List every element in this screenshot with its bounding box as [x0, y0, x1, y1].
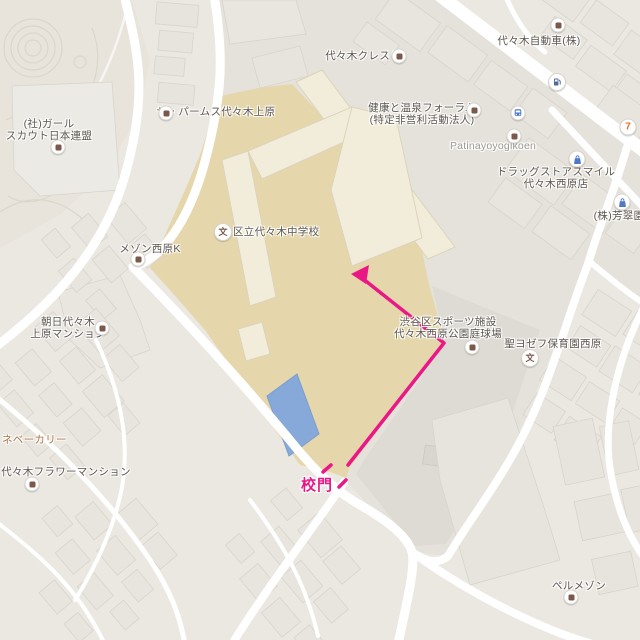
- label-shibuya-sports-courts: 渋谷区スポーツ施設代々木西原公園庭球場: [394, 316, 502, 340]
- school-icon[interactable]: 文: [214, 223, 232, 241]
- poi-icon-flower-mansion[interactable]: [25, 477, 40, 492]
- poi-icon-maison-nishihara[interactable]: [131, 252, 146, 267]
- poi-icon-palms[interactable]: [159, 106, 174, 121]
- label-bell-maison: ペルメゾン: [552, 580, 606, 592]
- poi-icon-bell-maison[interactable]: [564, 590, 579, 605]
- poi-icon-yoyogi-jidosha[interactable]: [551, 18, 566, 33]
- school-icon-nursery[interactable]: 文: [521, 349, 539, 367]
- bus-stop-icon[interactable]: [511, 106, 526, 121]
- seven-eleven-icon[interactable]: 7: [620, 119, 637, 136]
- poi-icon-girl-scout[interactable]: [51, 140, 66, 155]
- gas-station-icon[interactable]: [548, 73, 566, 91]
- label-yoyogi-crest: 代々木クレスト: [325, 50, 401, 62]
- poi-icon-asahi-mansion[interactable]: [95, 321, 110, 336]
- label-maison-nishihara-k: メゾン西原K: [119, 243, 180, 255]
- label-patina-yoyogikoen: Patinayoyogikoen: [450, 140, 536, 152]
- map-canvas[interactable]: 代々木クレスト 代々木自動車(株) (社)ガールスカウト日本連盟 ザ・パームス代…: [0, 0, 640, 640]
- label-school-gate: 校門: [301, 480, 333, 492]
- poi-icon-kenko-onsen[interactable]: [467, 103, 482, 118]
- poi-icon-sports-courts[interactable]: [465, 340, 480, 355]
- label-palms-yoyogi-uehara: ザ・パームス代々木上原: [157, 106, 275, 118]
- poi-icon-patina[interactable]: [507, 129, 522, 144]
- shopping-bag-icon-drugstore[interactable]: [569, 151, 586, 168]
- label-girl-scout: (社)ガールスカウト日本連盟: [6, 118, 92, 142]
- label-hosuien: (株)芳翠園: [594, 210, 640, 222]
- label-drugstore-smile: ドラッグストアスマイル代々木西原店: [497, 166, 615, 190]
- label-kenko-onsen-forum: 健康と温泉フォーラム(特定非営利活動法人): [368, 102, 476, 126]
- label-yoyogi-flower-mansion: 代々木フラワーマンション: [1, 466, 131, 478]
- shopping-bag-icon-hosuien[interactable]: [614, 194, 631, 211]
- poi-icon-yoyogi-crest[interactable]: [392, 49, 407, 64]
- label-yoyogi-jidosha: 代々木自動車(株): [497, 35, 580, 47]
- label-st-joseph-nursery: 聖ヨゼフ保育園西原: [504, 338, 601, 350]
- label-yoyogi-junior-high: 区立代々木中学校: [233, 226, 319, 238]
- label-ne-bakery: ネベーカリー: [2, 434, 67, 446]
